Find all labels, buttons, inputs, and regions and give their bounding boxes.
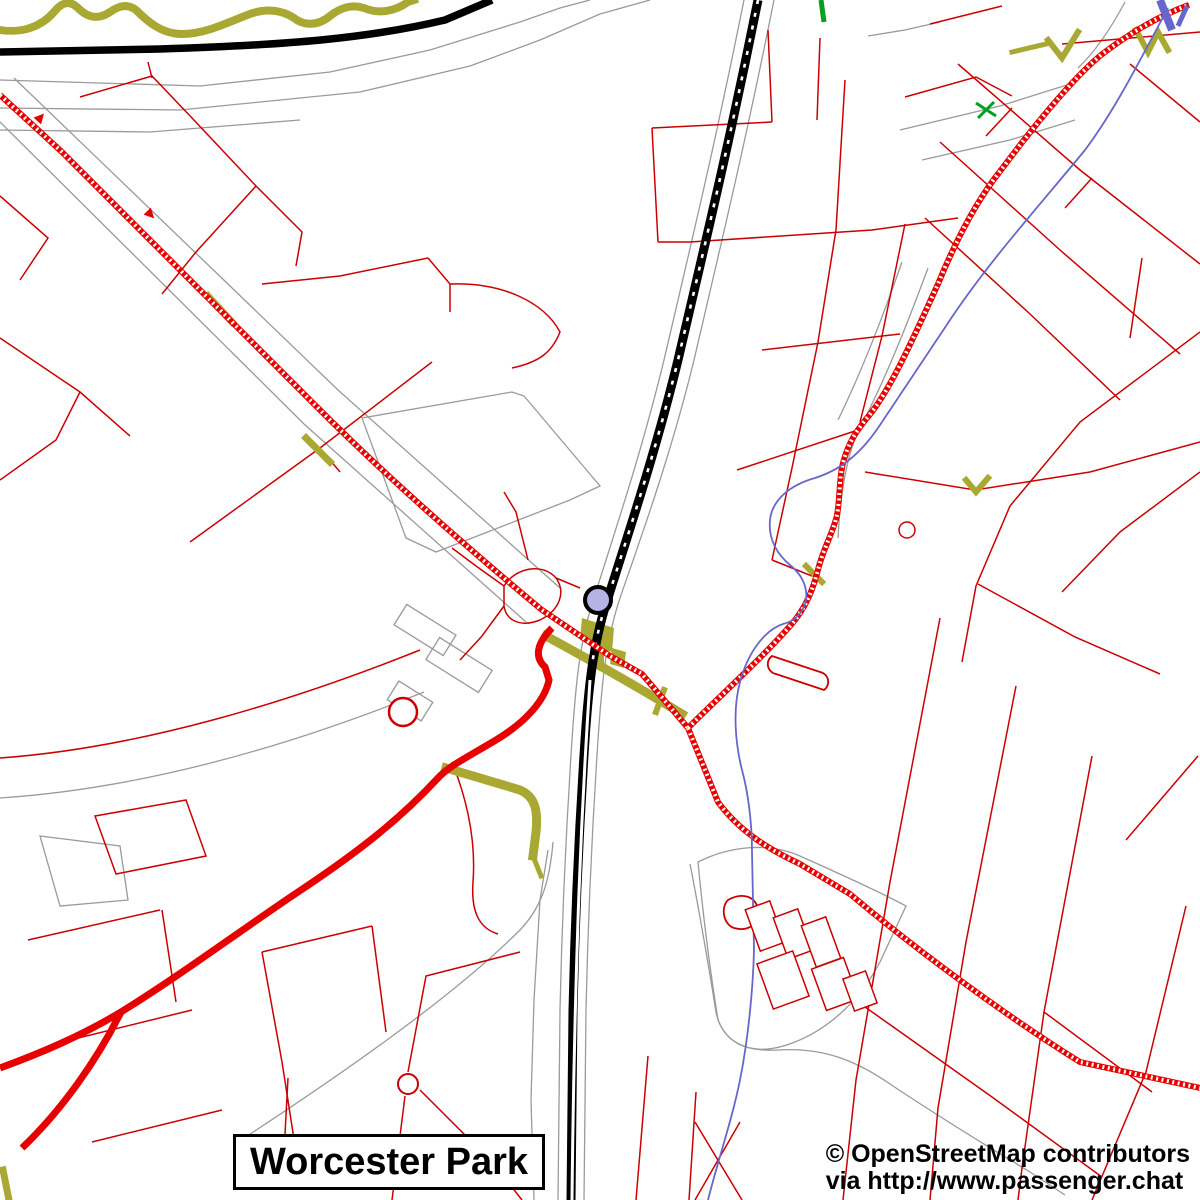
mini-roundabout-icon [398,1074,418,1094]
turning-circle-icon [389,698,417,726]
roundabouts-layer [389,522,915,1094]
area-outlines-layer [0,0,1125,1200]
buildings-layer [745,901,877,1011]
greenway-layer [821,0,996,118]
attribution-line-1: © OpenStreetMap contributors [826,1141,1190,1168]
railway-station-icon[interactable] [585,587,611,613]
pond-icon [1160,0,1172,30]
place-label: Worcester Park [233,1134,545,1190]
place-label-text: Worcester Park [250,1141,528,1184]
map-canvas[interactable]: Worcester Park © OpenStreetMap contribut… [0,0,1200,1200]
oneway-arrow-icon [34,110,48,124]
station-marker[interactable] [585,587,611,613]
primary-roads-layer [0,5,1200,1148]
map-svg [0,0,1200,1200]
stream-line [708,0,1187,1200]
map-attribution: © OpenStreetMap contributors via http://… [826,1141,1190,1194]
attribution-line-2[interactable]: via http://www.passenger.chat [826,1168,1190,1195]
turning-circle-icon [899,522,915,538]
